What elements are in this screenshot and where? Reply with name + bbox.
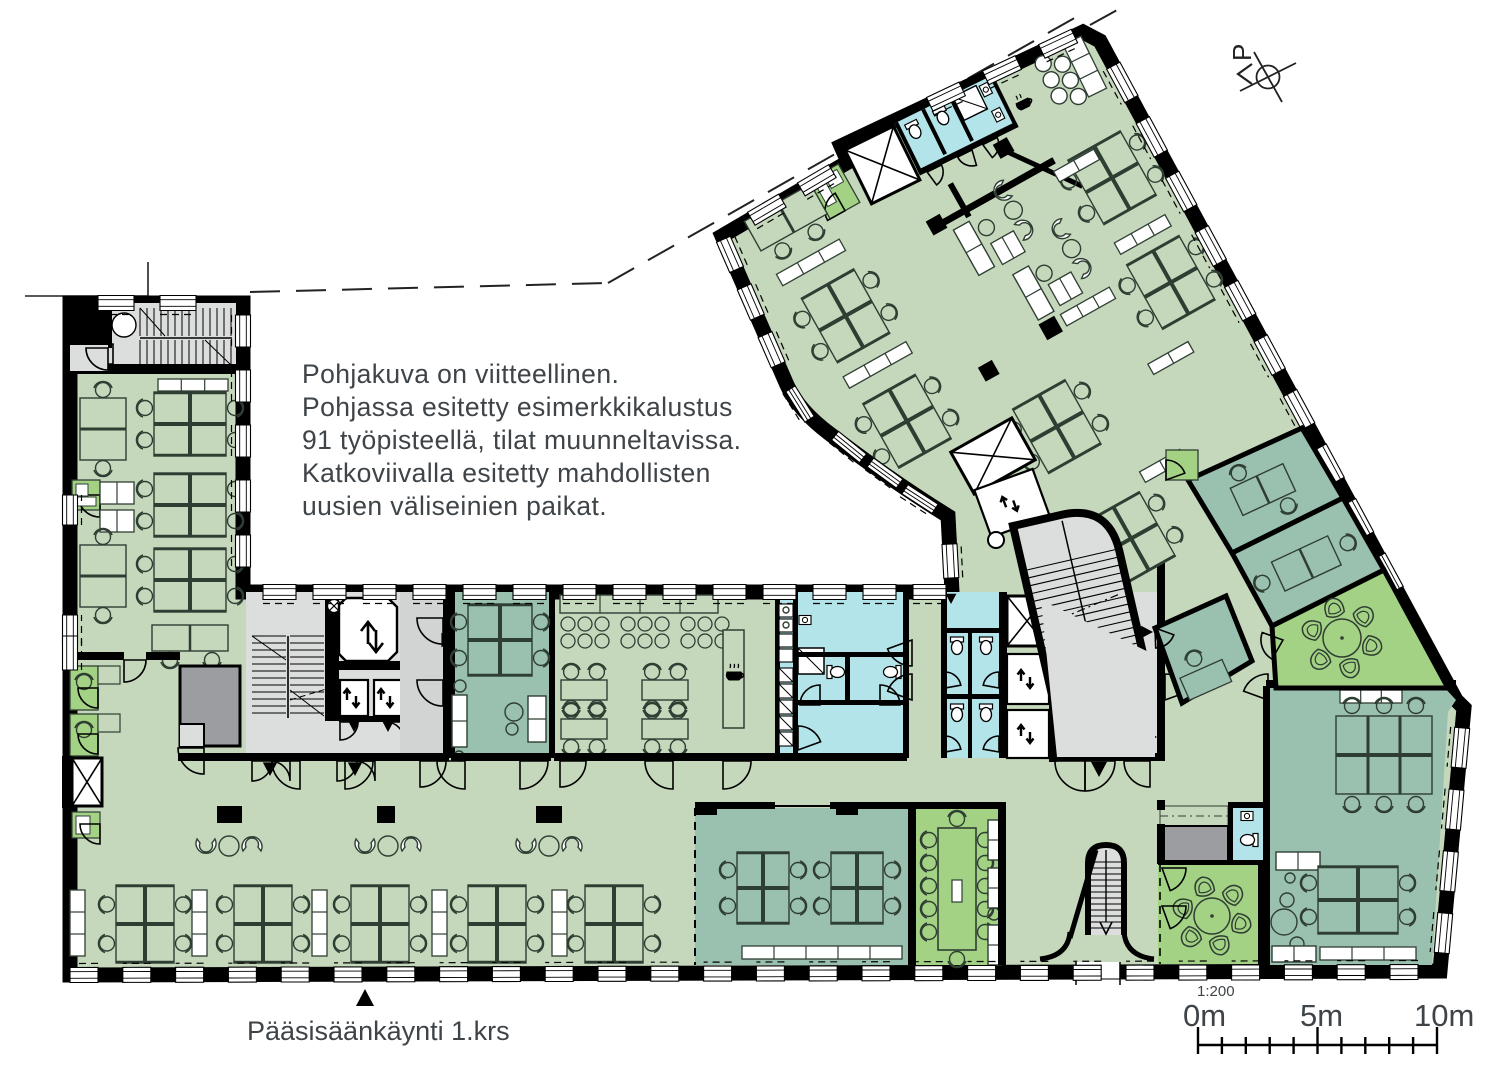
svg-text:0m: 0m: [1183, 998, 1226, 1033]
svg-text:5m: 5m: [1300, 998, 1343, 1033]
svg-text:uusien väliseinien paikat.: uusien väliseinien paikat.: [302, 491, 607, 521]
svg-text:P: P: [1227, 44, 1257, 61]
svg-text:10m: 10m: [1414, 998, 1474, 1033]
svg-text:Pääsisäänkäynti 1.krs: Pääsisäänkäynti 1.krs: [247, 1016, 510, 1046]
svg-text:Katkoviivalla esitetty mahdoll: Katkoviivalla esitetty mahdollisten: [302, 458, 711, 488]
svg-text:Pohjassa esitetty esimerkkikal: Pohjassa esitetty esimerkkikalustus: [302, 392, 733, 422]
svg-text:91 työpisteellä, tilat muunnel: 91 työpisteellä, tilat muunneltavissa.: [302, 425, 741, 455]
svg-text:Pohjakuva on viitteellinen.: Pohjakuva on viitteellinen.: [302, 359, 619, 389]
